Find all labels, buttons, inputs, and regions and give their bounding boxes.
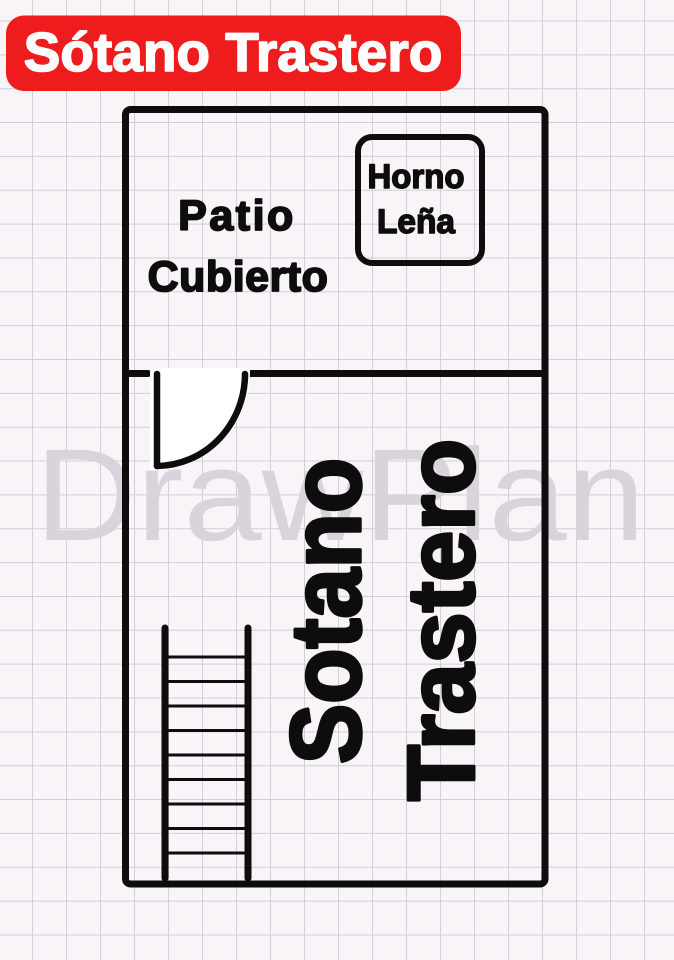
svg-text:Patio: Patio bbox=[178, 192, 296, 240]
svg-text:Cubierto: Cubierto bbox=[148, 253, 329, 301]
svg-text:Sótano Trastero: Sótano Trastero bbox=[24, 21, 443, 83]
svg-text:Leña: Leña bbox=[377, 203, 456, 241]
svg-text:Sotano: Sotano bbox=[270, 458, 381, 764]
svg-text:Horno: Horno bbox=[368, 158, 465, 196]
svg-text:Trastero: Trastero bbox=[389, 439, 495, 801]
